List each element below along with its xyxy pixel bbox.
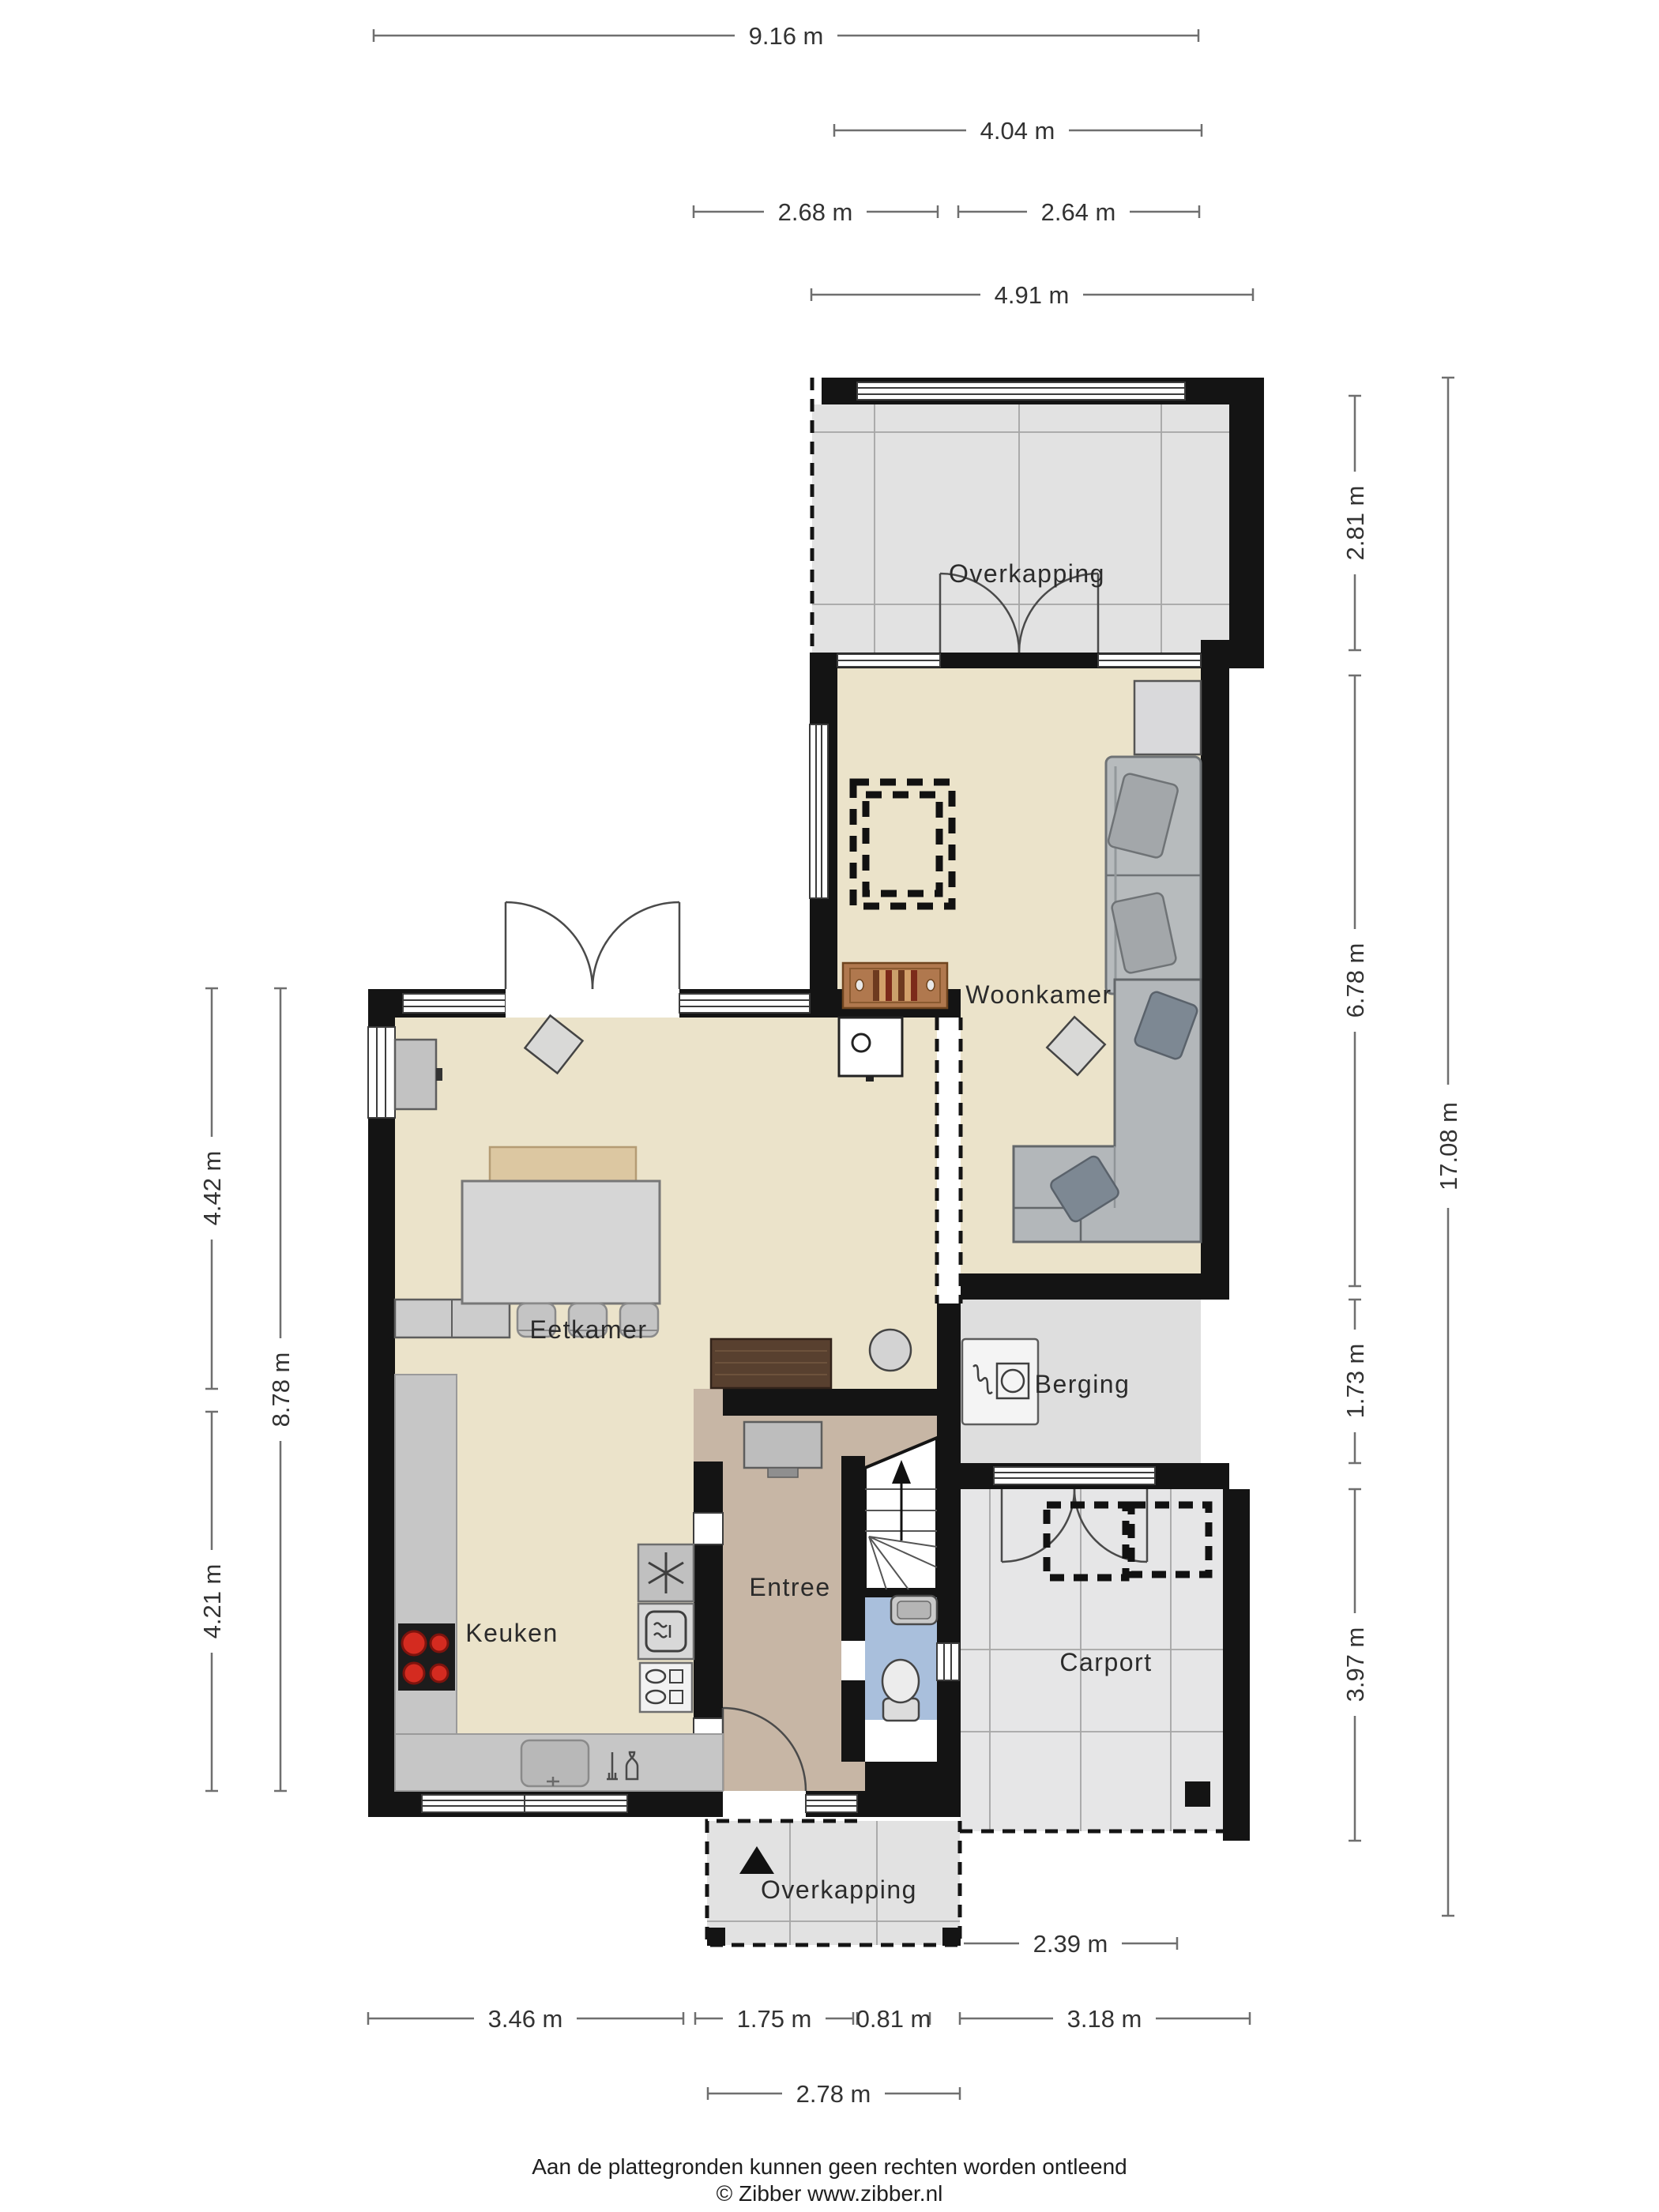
window-entree-sidelight (806, 1795, 857, 1812)
label-berging: Berging (1035, 1370, 1130, 1398)
dim-left-878: 8.78 m (265, 988, 295, 1791)
dim-left-421: 4.21 m (197, 1412, 227, 1791)
wall-overkapping-right (1229, 378, 1264, 668)
sideboard-wood (843, 963, 947, 1008)
wall-cabinet (395, 1040, 436, 1109)
label-eetkamer: Eetkamer (530, 1315, 648, 1344)
wall-cabinet-handle (436, 1068, 442, 1081)
dim-label: 6.78 m (1341, 943, 1369, 1018)
dim-top-491: 4.91 m (811, 280, 1253, 310)
label-overkapping-bottom: Overkapping (761, 1875, 917, 1904)
desk-wood (711, 1339, 831, 1388)
entree-cabinet (744, 1422, 822, 1468)
small-appliances (640, 1663, 692, 1712)
dim-label: 17.08 m (1435, 1102, 1462, 1191)
dim-right-281: 2.81 m (1340, 396, 1370, 650)
dim-label: 2.81 m (1341, 486, 1369, 561)
wall-wc-bottom (865, 1762, 937, 1791)
dim-label: 2.78 m (796, 2080, 871, 2108)
wc-alcove (865, 1720, 937, 1762)
dim-label: 1.73 m (1341, 1344, 1369, 1419)
sofa-two-seat (1106, 757, 1201, 994)
footer: Aan de plattegronden kunnen geen rechten… (532, 2154, 1127, 2206)
window-woonkamer-left (810, 724, 828, 898)
dim-label: 2.68 m (778, 198, 853, 226)
dim-label: 2.64 m (1041, 198, 1116, 226)
dim-label: 3.46 m (488, 2005, 563, 2033)
dining-table (462, 1181, 660, 1303)
dim-label: 8.78 m (267, 1352, 295, 1428)
wall-passage-cap (937, 1303, 961, 1329)
dim-bottom-346: 3.46 m (368, 2003, 683, 2033)
kitchen-counter-left (395, 1375, 457, 1791)
dim-label: 4.91 m (995, 281, 1070, 309)
window-keuken-bottom (422, 1795, 627, 1812)
window-entree-left-1 (694, 1513, 723, 1544)
dim-label: 3.97 m (1341, 1627, 1369, 1702)
dim-left-442: 4.42 m (197, 988, 227, 1389)
window-eetkamer-left (368, 1027, 395, 1118)
french-doors-eetkamer (506, 902, 679, 989)
dim-right-173: 1.73 m (1340, 1300, 1370, 1463)
label-woonkamer: Woonkamer (965, 980, 1112, 1009)
dim-bottom-239: 2.39 m (964, 1928, 1177, 1958)
wall-stairs-left (841, 1456, 865, 1762)
round-pouf (870, 1330, 911, 1371)
wall-entree-top (723, 1389, 937, 1416)
window-berging-bottom (994, 1467, 1155, 1484)
kitchen-sink (521, 1740, 589, 1786)
dim-right-678: 6.78 m (1340, 675, 1370, 1286)
footer-credit: © Zibber www.zibber.nl (717, 2181, 943, 2206)
wall-entree-right (937, 1329, 961, 1817)
dim-label: 3.18 m (1067, 2005, 1142, 2033)
wood-stove (839, 1018, 902, 1082)
dim-right-397: 3.97 m (1340, 1489, 1370, 1841)
wall-step-connector (1201, 640, 1264, 668)
wc-door-opening (841, 1641, 865, 1680)
dim-label: 4.42 m (198, 1151, 226, 1226)
label-overkapping-top: Overkapping (949, 559, 1105, 588)
dim-top-404: 4.04 m (834, 115, 1202, 145)
side-table-square (1134, 681, 1201, 754)
window-woonkamer-top-right (1098, 654, 1201, 667)
wc-sink-basin (897, 1601, 931, 1619)
dim-top-264: 2.64 m (958, 197, 1199, 227)
dim-top-916: 9.16 m (374, 21, 1198, 51)
window-wc-right (937, 1643, 959, 1680)
dim-label: 9.16 m (749, 22, 824, 50)
oven-unit (638, 1604, 694, 1659)
dim-label: 2.39 m (1033, 1930, 1108, 1958)
dim-right-1708: 17.08 m (1433, 378, 1463, 1916)
toilet (882, 1660, 919, 1721)
cooktop (398, 1623, 455, 1691)
dining-bench (490, 1147, 636, 1181)
passage-strip (937, 1018, 961, 1303)
dim-label: 0.81 m (856, 2005, 931, 2033)
front-door-opening (723, 1791, 806, 1817)
window-eetkamer-top-left (403, 994, 506, 1013)
dim-bottom-318: 3.18 m (960, 2003, 1250, 2033)
window-eetkamer-top-right (679, 994, 810, 1013)
label-carport: Carport (1059, 1648, 1152, 1676)
carport-post (1185, 1781, 1210, 1807)
label-entree: Entree (749, 1573, 830, 1601)
entree-stool (768, 1468, 798, 1477)
window-woonkamer-top-left (837, 654, 940, 667)
sideboard-stripes (873, 970, 917, 1001)
dim-bottom-081: 0.81 m (856, 2003, 931, 2033)
extractor-unit (638, 1544, 694, 1601)
door-opening-eetkamer (506, 989, 679, 1018)
dim-bottom-175: 1.75 m (695, 2003, 853, 2033)
footer-disclaimer: Aan de plattegronden kunnen geen rechten… (532, 2154, 1127, 2179)
dim-label: 1.75 m (737, 2005, 812, 2033)
label-keuken: Keuken (465, 1619, 559, 1647)
laundry-station (962, 1339, 1038, 1424)
dim-label: 4.04 m (980, 117, 1055, 145)
floorplan-svg: Overkapping Woonkamer Eetkamer Keuken En… (0, 0, 1659, 2212)
wall-berging-top (961, 1273, 1229, 1300)
floorplan-canvas: Overkapping Woonkamer Eetkamer Keuken En… (0, 0, 1659, 2212)
dim-label: 4.21 m (198, 1564, 226, 1639)
window-overkapping-top (857, 382, 1185, 400)
wall-woonkamer-right (1201, 668, 1229, 1273)
dim-top-268: 2.68 m (694, 197, 938, 227)
wall-carport-right (1223, 1489, 1250, 1841)
dim-bottom-278: 2.78 m (708, 2078, 960, 2109)
